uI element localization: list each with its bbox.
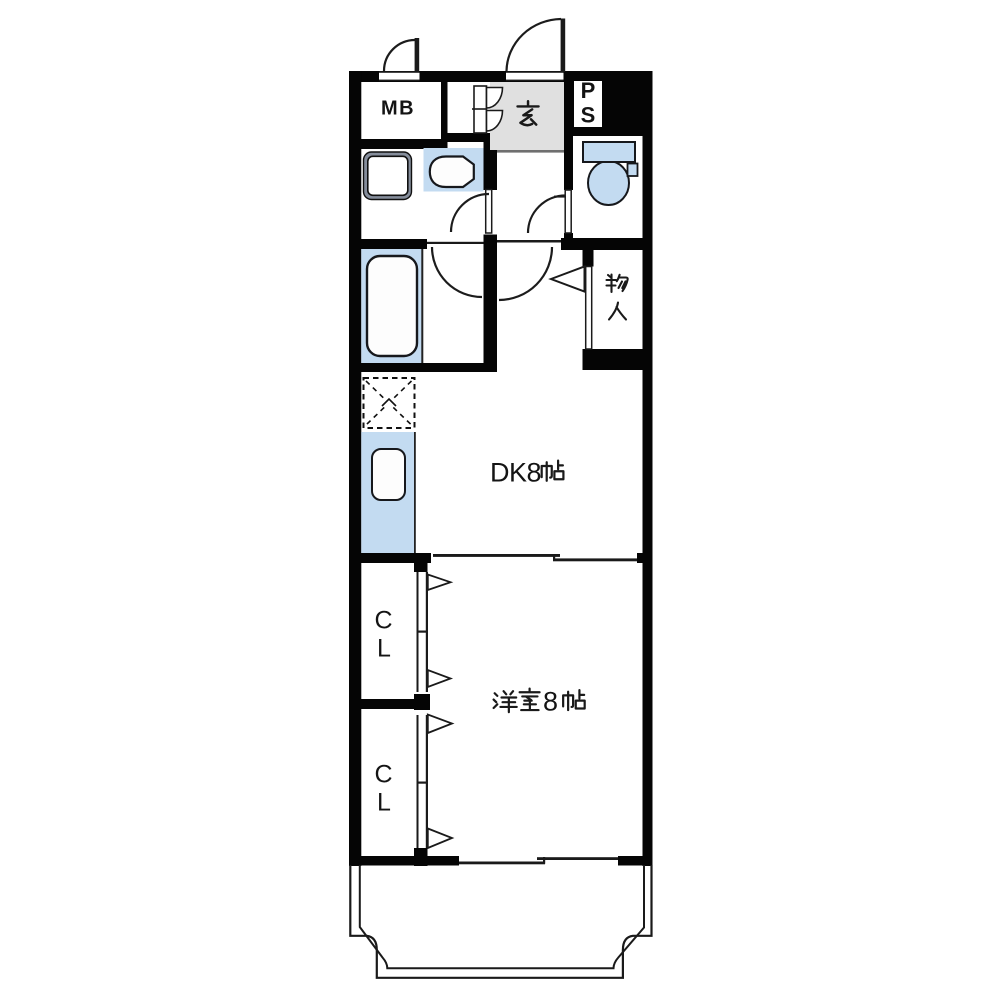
svg-text:L: L — [377, 635, 391, 663]
svg-text:C: C — [374, 607, 392, 635]
svg-text:S: S — [581, 103, 596, 128]
svg-text:MB: MB — [381, 98, 415, 120]
svg-text:8: 8 — [543, 687, 558, 717]
svg-text:DK8: DK8 — [490, 458, 541, 488]
svg-text:L: L — [377, 789, 391, 817]
svg-text:C: C — [374, 761, 392, 789]
svg-text:P: P — [581, 78, 596, 103]
